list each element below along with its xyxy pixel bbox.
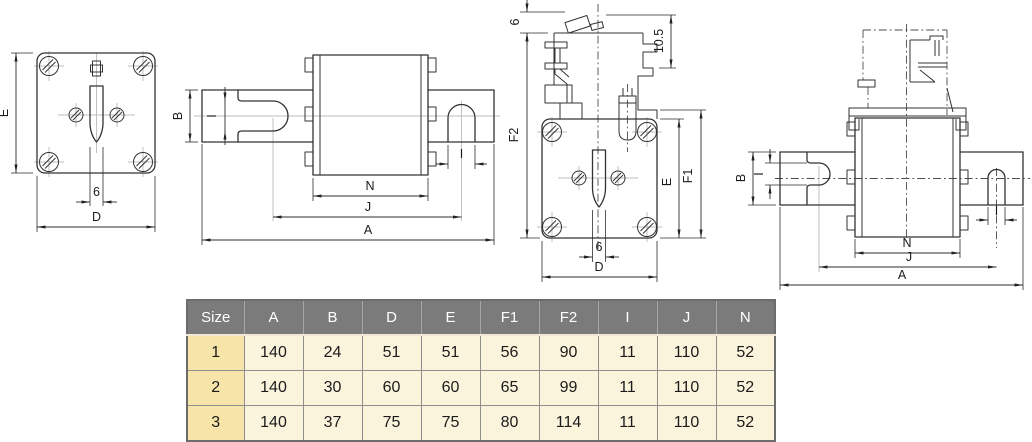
mounting-bracket	[849, 108, 966, 130]
dim-label-F1: F1	[681, 169, 695, 184]
screw-centerlines	[34, 51, 158, 177]
column-header-E: E	[421, 300, 480, 335]
value-cell-I: 11	[598, 335, 657, 371]
dimensions-table-wrapper: SizeABDEF1F2IJN 114024515156901111052214…	[186, 299, 776, 442]
value-cell-F1: 80	[480, 406, 539, 442]
column-header-I: I	[598, 300, 657, 335]
value-cell-J: 110	[657, 371, 716, 406]
dim-label-I-right: I	[460, 147, 463, 161]
column-header-A: A	[244, 300, 303, 335]
dim-label-J: J	[906, 250, 912, 264]
value-cell-N: 52	[716, 371, 775, 406]
value-cell-E: 60	[421, 371, 480, 406]
dim-label-E: E	[660, 178, 674, 186]
value-cell-F1: 65	[480, 371, 539, 406]
column-header-N: N	[716, 300, 775, 335]
corner-screws	[40, 57, 153, 172]
fuse-cartridge	[313, 55, 428, 175]
column-header-F1: F1	[480, 300, 539, 335]
size-cell: 2	[187, 371, 244, 406]
dim-label-E: E	[0, 109, 11, 117]
dim-label-B: B	[734, 174, 748, 182]
table-row-size-2: 214030606065991111052	[187, 371, 775, 406]
table-row-size-3: 3140377575801141111052	[187, 406, 775, 442]
dim-label-F2: F2	[507, 128, 521, 143]
dim-label-N: N	[902, 236, 911, 250]
dim-label-I-right: I	[995, 204, 998, 218]
dim-label-A: A	[364, 223, 373, 237]
fuse-cartridge	[855, 118, 960, 237]
column-header-F2: F2	[539, 300, 598, 335]
dim-label-D: D	[594, 260, 603, 274]
value-cell-N: 52	[716, 406, 775, 442]
dim-label-J: J	[365, 200, 371, 214]
value-cell-F2: 99	[539, 371, 598, 406]
dim-label-A: A	[898, 268, 907, 282]
microswitch-outline	[863, 30, 947, 115]
value-cell-A: 140	[244, 371, 303, 406]
microswitch-details	[858, 36, 953, 112]
technical-drawing-side-view-indicator: B I I N J A	[735, 18, 1032, 295]
dim-label-D: D	[92, 210, 101, 224]
value-cell-F1: 56	[480, 335, 539, 371]
value-cell-D: 60	[362, 371, 421, 406]
column-header-Size: Size	[187, 300, 244, 335]
value-cell-B: 30	[303, 371, 362, 406]
value-cell-D: 51	[362, 335, 421, 371]
dim-label-I-left: I	[752, 172, 766, 175]
dim-label-I-left: I	[205, 114, 219, 117]
dim-label-striker-travel: 6	[508, 18, 522, 25]
dim-label-slot-width: 6	[93, 185, 100, 199]
size-cell: 3	[187, 406, 244, 442]
value-cell-F2: 114	[539, 406, 598, 442]
value-cell-F2: 90	[539, 335, 598, 371]
dim-label-overtravel: 10.5	[652, 29, 666, 53]
table-row-size-1: 114024515156901111052	[187, 335, 775, 371]
value-cell-E: 51	[421, 335, 480, 371]
value-cell-J: 110	[657, 335, 716, 371]
corner-screws	[543, 123, 657, 237]
value-cell-A: 140	[244, 335, 303, 371]
microswitch	[545, 33, 657, 119]
value-cell-I: 11	[598, 371, 657, 406]
column-header-D: D	[362, 300, 421, 335]
column-header-B: B	[303, 300, 362, 335]
dim-label-slot-width: 6	[596, 240, 603, 254]
screw-centerlines	[537, 117, 662, 242]
value-cell-B: 37	[303, 406, 362, 442]
value-cell-A: 140	[244, 406, 303, 442]
size-cell: 1	[187, 335, 244, 371]
dim-label-N: N	[365, 179, 374, 193]
technical-drawing-front-view-indicator: 6 10.5 F2 E F1 6 D	[470, 0, 715, 292]
dim-label-B: B	[171, 112, 185, 120]
table-header-row: SizeABDEF1F2IJN	[187, 300, 775, 335]
value-cell-I: 11	[598, 406, 657, 442]
value-cell-E: 75	[421, 406, 480, 442]
size-dimensions-table: SizeABDEF1F2IJN 114024515156901111052214…	[186, 299, 776, 442]
end-cap-clips	[305, 58, 436, 166]
technical-drawing-side-view: B I I N J A	[178, 45, 508, 255]
column-header-J: J	[657, 300, 716, 335]
indicator-slot	[593, 150, 606, 207]
value-cell-J: 110	[657, 406, 716, 442]
value-cell-B: 24	[303, 335, 362, 371]
technical-drawing-front-view: E 6 D	[0, 35, 175, 245]
value-cell-N: 52	[716, 335, 775, 371]
value-cell-D: 75	[362, 406, 421, 442]
end-cap-clips	[847, 122, 968, 230]
